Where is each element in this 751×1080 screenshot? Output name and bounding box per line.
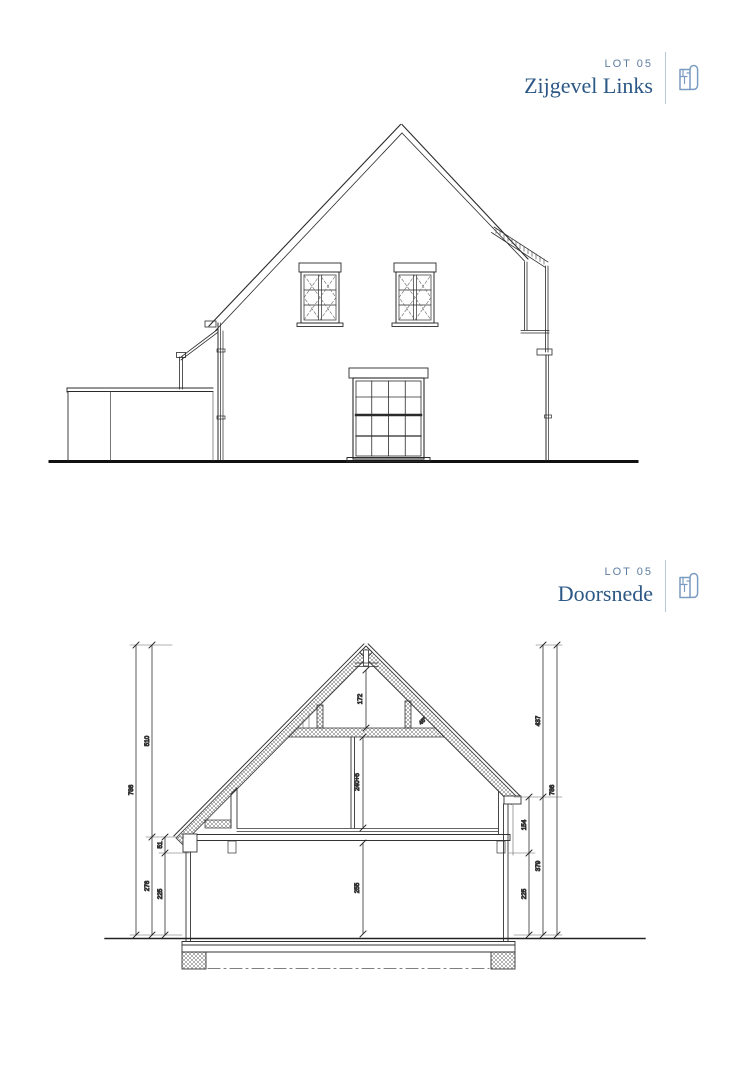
dimension-labels: 786 510 276 51 225 172 240+5 255 154 225…	[128, 693, 556, 899]
gutter-left	[183, 834, 197, 852]
elevation-drawing	[0, 0, 751, 540]
roof-section: 45°	[174, 644, 520, 844]
dim-roof-upper-right: 437	[535, 715, 542, 726]
dim-wall-right: 225	[521, 888, 528, 899]
section-drawing: 45°	[0, 540, 751, 1080]
knee-post-right	[405, 701, 411, 728]
dim-total-left: 786	[128, 784, 135, 795]
dim-eaves-to-floor-right: 154	[521, 819, 528, 830]
knee-post-left	[317, 705, 323, 728]
dim-lower-left: 276	[144, 880, 151, 891]
opening-direction-dashes	[399, 275, 431, 320]
dimension-lines	[136, 645, 557, 935]
dim-eaves-left: 51	[157, 841, 164, 849]
main-walls	[217, 323, 552, 460]
footing-right	[491, 952, 515, 969]
dim-ground-floor-height: 255	[354, 882, 361, 893]
gable-roof	[205, 125, 552, 356]
foundation	[182, 942, 515, 970]
dim-total-right: 786	[549, 784, 556, 795]
dim-wall-left: 225	[157, 888, 164, 899]
opening-direction-dashes	[304, 275, 336, 320]
dim-attic-height: 172	[357, 693, 364, 704]
canopy	[177, 330, 218, 390]
first-floor	[205, 737, 499, 834]
window-upper-right	[392, 263, 438, 327]
exterior-walls	[183, 796, 521, 941]
dimension-ticks	[133, 642, 560, 938]
downspout-left	[221, 323, 224, 460]
window-upper-left	[297, 263, 343, 327]
dim-upper-left: 510	[144, 735, 151, 746]
glazed-door	[347, 368, 430, 461]
garage-extension	[67, 388, 213, 460]
dim-first-floor-height: 240+5	[354, 773, 361, 791]
dim-lower-right: 379	[535, 860, 542, 871]
footing-left	[182, 952, 206, 969]
storey-floor-slab	[188, 829, 510, 854]
